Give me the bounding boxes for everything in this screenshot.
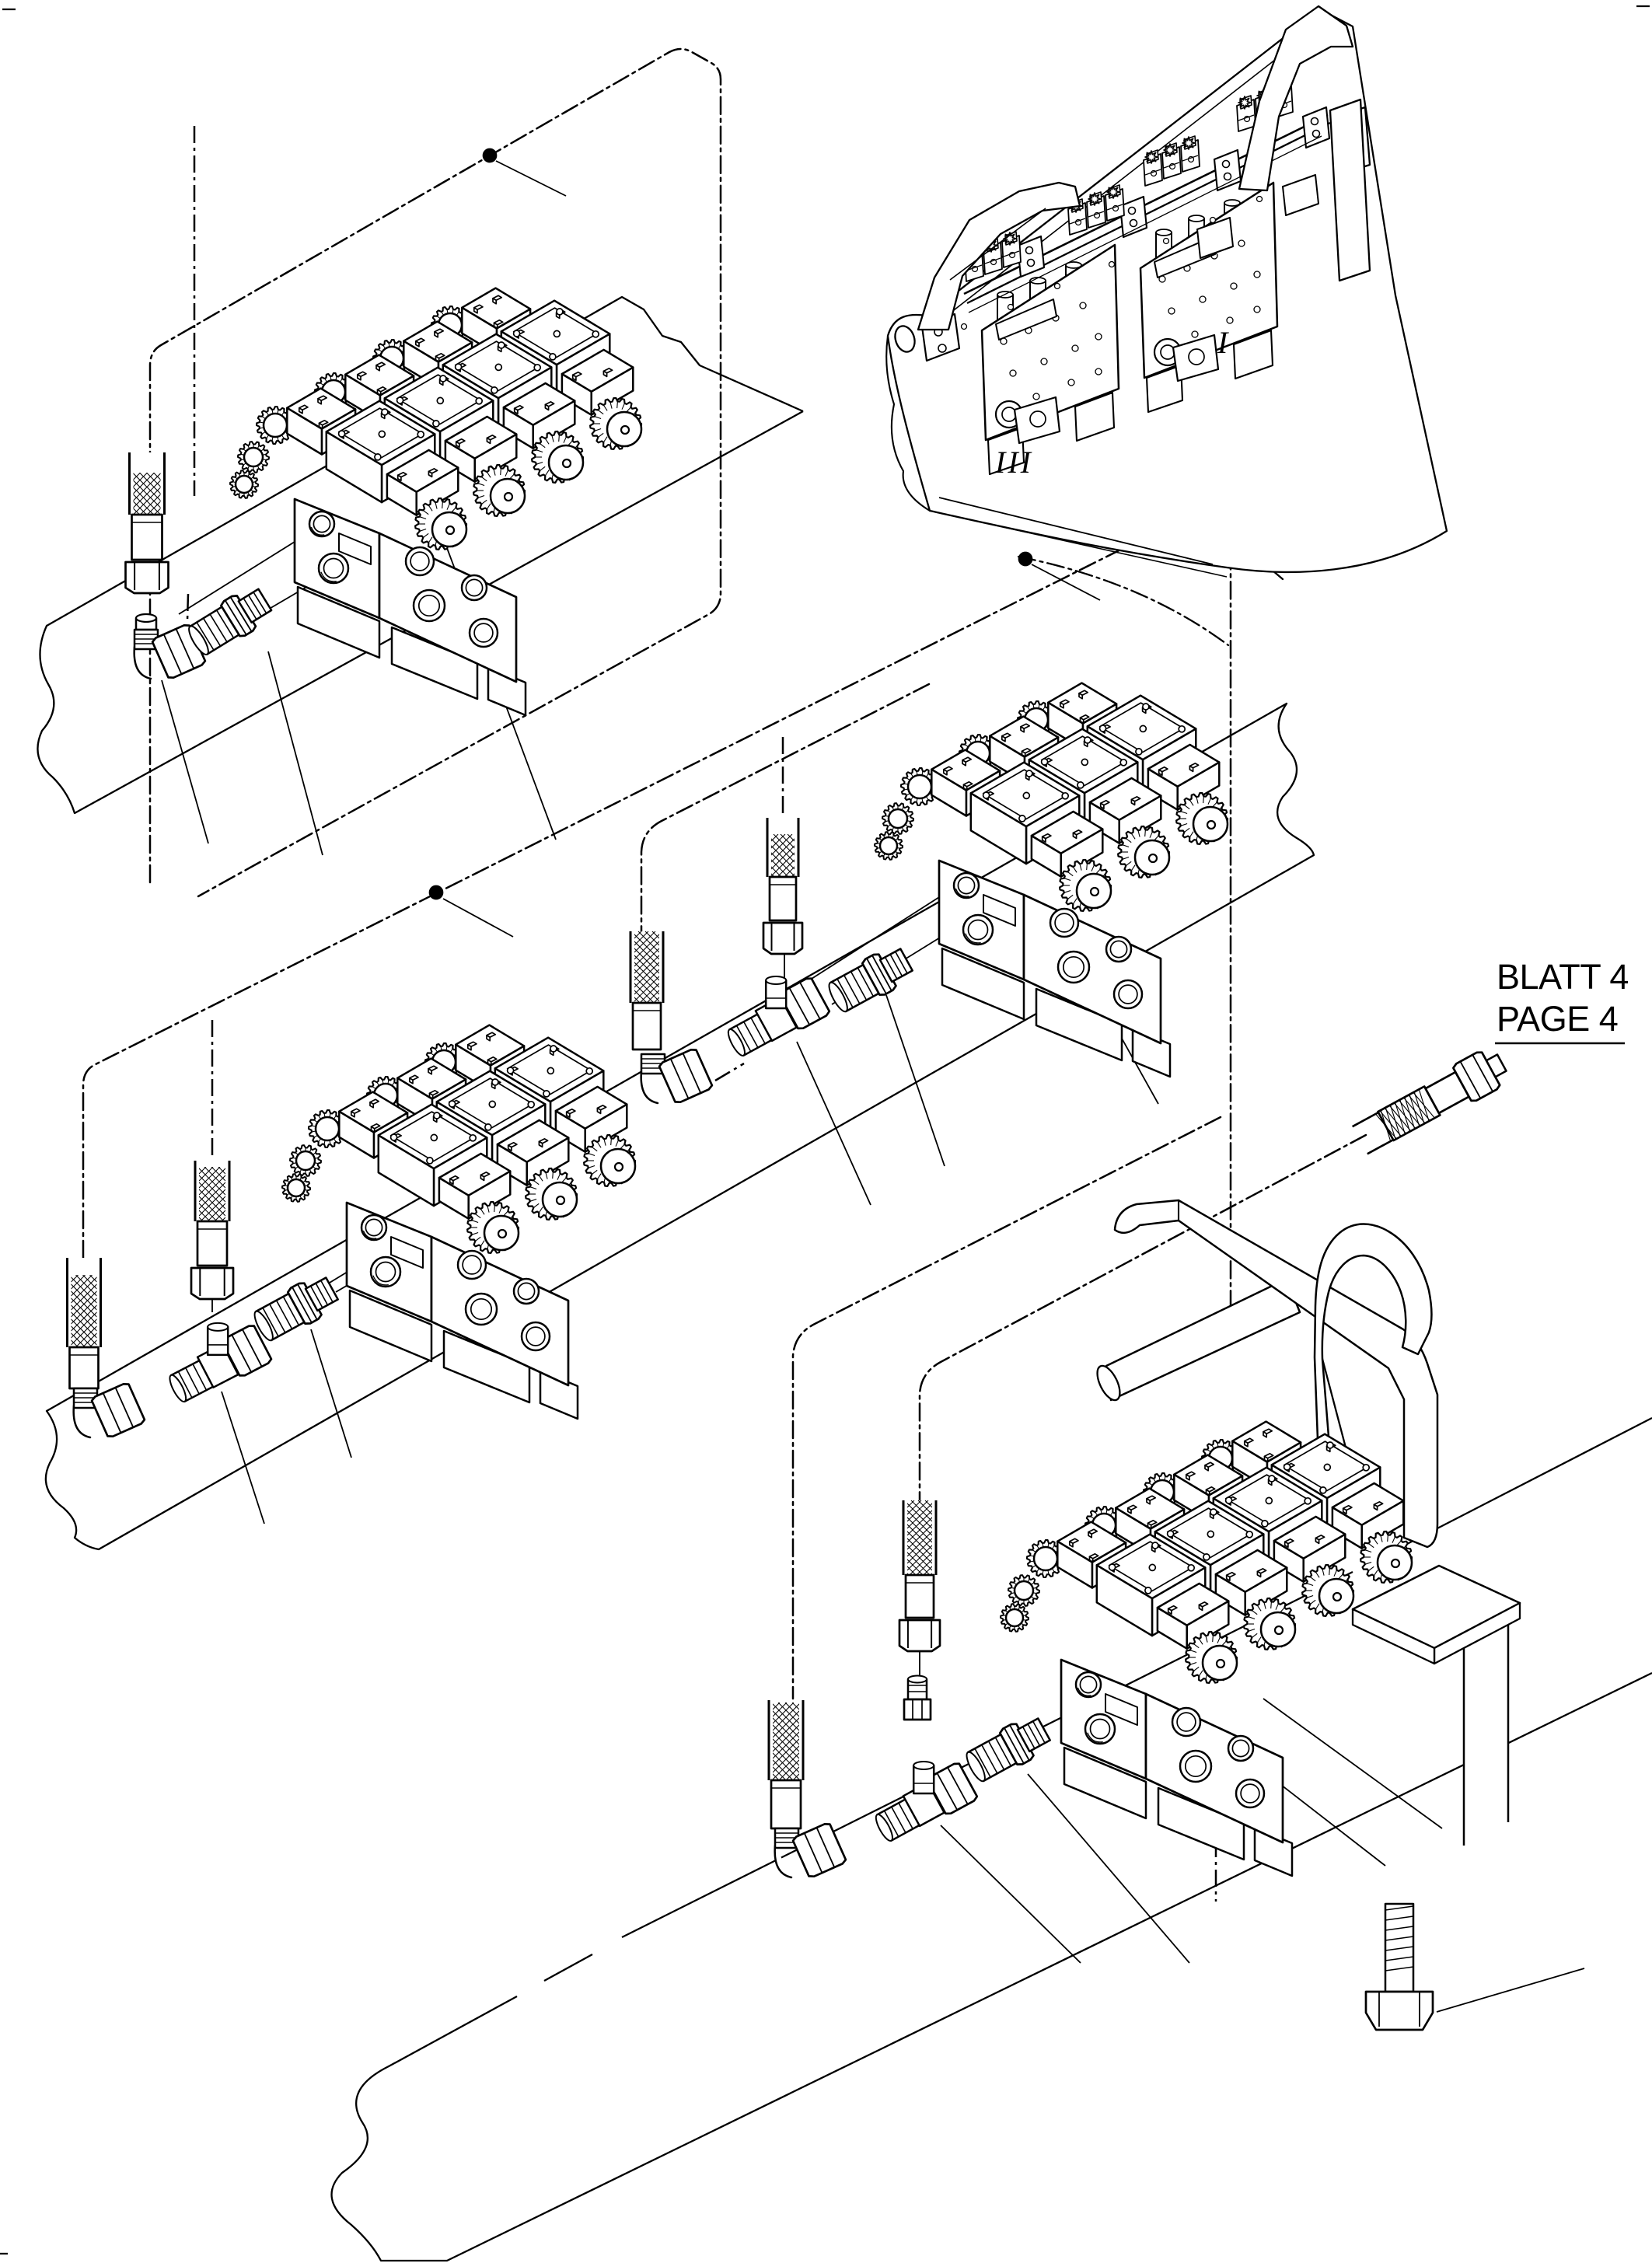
svg-text:BLATT 4: BLATT 4: [1497, 957, 1629, 997]
svg-text:III: III: [994, 445, 1033, 480]
svg-text:I: I: [1217, 325, 1229, 360]
svg-text:PAGE 4: PAGE 4: [1497, 999, 1618, 1039]
